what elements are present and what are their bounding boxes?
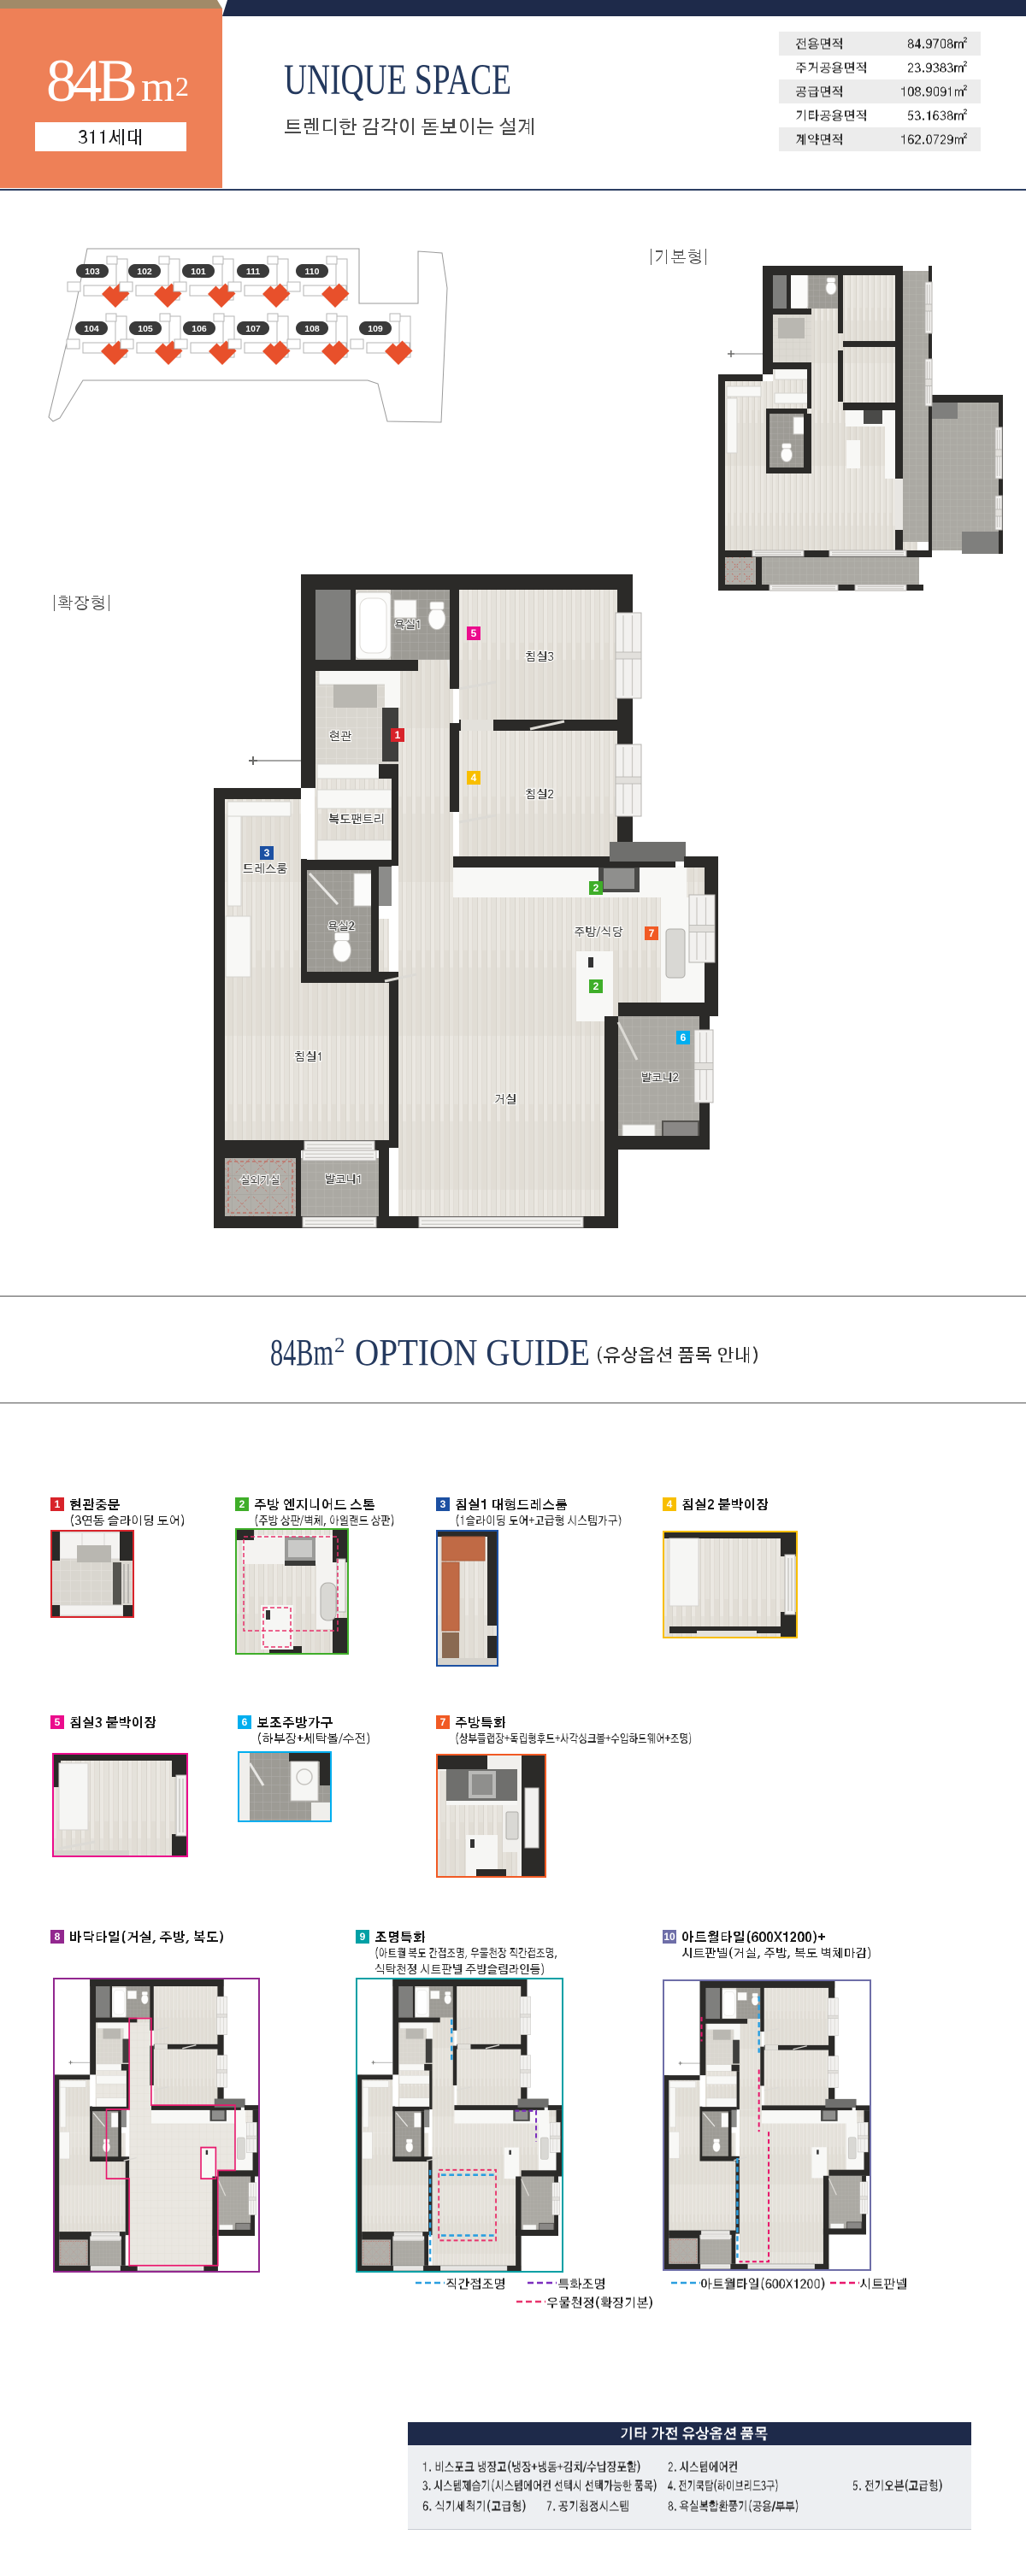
svg-text:110: 110 (305, 267, 320, 277)
svg-text:6: 6 (242, 1716, 248, 1728)
svg-text:2: 2 (334, 1334, 345, 1357)
svg-text:2: 2 (239, 1498, 245, 1510)
svg-text:3: 3 (264, 847, 270, 859)
svg-text:UNIQUE SPACE: UNIQUE SPACE (284, 56, 511, 104)
svg-text:5: 5 (55, 1716, 61, 1728)
svg-text:2: 2 (593, 882, 599, 894)
svg-text:111: 111 (246, 267, 261, 277)
svg-text:1: 1 (55, 1498, 61, 1510)
svg-text:4: 4 (471, 772, 477, 784)
svg-text:8: 8 (55, 1931, 61, 1943)
svg-text:109: 109 (368, 324, 383, 334)
svg-text:103: 103 (85, 267, 100, 277)
svg-text:7: 7 (649, 927, 655, 939)
svg-text:105: 105 (138, 324, 153, 334)
svg-text:4: 4 (667, 1498, 673, 1510)
svg-text:107: 107 (245, 324, 261, 334)
svg-text:84Bm: 84Bm (270, 1332, 333, 1373)
svg-text:10: 10 (663, 1931, 675, 1943)
svg-text:2: 2 (593, 980, 599, 992)
svg-text:OPTION GUIDE: OPTION GUIDE (355, 1332, 590, 1373)
svg-text:104: 104 (84, 324, 99, 334)
svg-text:108: 108 (304, 324, 320, 334)
svg-text:1: 1 (395, 729, 401, 741)
svg-text:102: 102 (137, 267, 152, 277)
svg-text:101: 101 (191, 267, 206, 277)
svg-text:5: 5 (471, 627, 477, 639)
svg-text:6: 6 (681, 1032, 687, 1044)
svg-text:106: 106 (192, 324, 207, 334)
svg-text:7: 7 (440, 1716, 446, 1728)
svg-text:3: 3 (440, 1498, 446, 1510)
svg-text:9: 9 (360, 1931, 366, 1943)
